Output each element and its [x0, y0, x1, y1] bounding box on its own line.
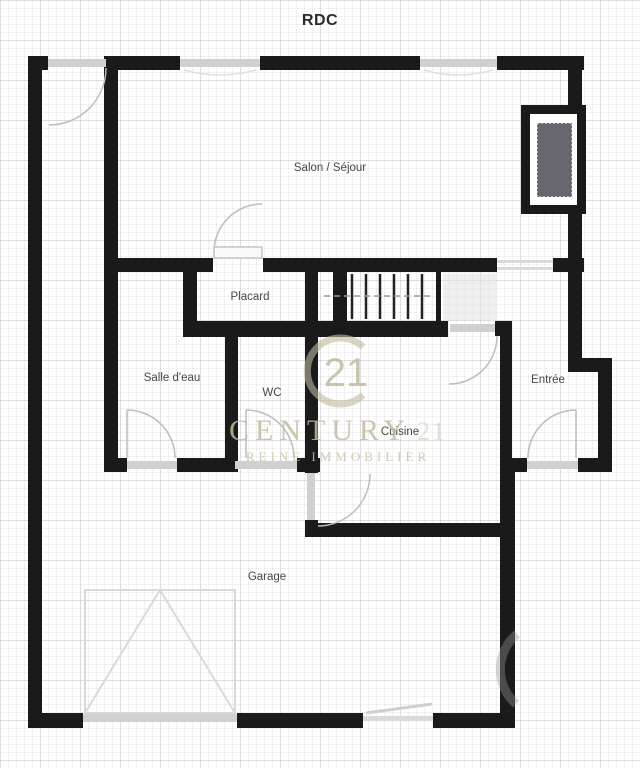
- watermark-tagline: REINE IMMOBILIER: [246, 449, 430, 465]
- watermark-logo: 21: [307, 338, 517, 704]
- placard-door-swing: [214, 204, 262, 252]
- garage-door: [85, 590, 432, 713]
- floor-plan-page: 21 RDC Salon / Séjour Placard Salle d'ea…: [0, 0, 640, 768]
- kitchen-door-opening: [450, 324, 495, 332]
- salle-deau-door-opening: [127, 461, 177, 469]
- side-door-opening: [48, 59, 106, 67]
- garage-rear-door-leaf: [366, 704, 432, 713]
- salon-window-right: [420, 59, 497, 67]
- kitchen-side-door-swing: [318, 474, 370, 526]
- salon-window-left: [180, 59, 260, 67]
- page-title: RDC: [302, 12, 338, 30]
- front-door-swing: [528, 410, 576, 458]
- salon-entree-passage-sill: [497, 267, 553, 270]
- salle-deau-door-swing: [127, 410, 175, 458]
- salon-entree-passage-sill: [497, 260, 553, 263]
- window-sill-arc: [184, 70, 256, 75]
- garage-door-opening: [83, 714, 237, 722]
- kitchen-door-swing: [449, 336, 497, 384]
- room-label-salle-deau: Salle d'eau: [144, 372, 201, 384]
- watermark-brand-number: 21: [417, 417, 447, 447]
- front-door-opening: [527, 461, 578, 469]
- chimney: [521, 105, 586, 214]
- watermark-brand-word: CENTURY: [229, 414, 411, 448]
- stair-end: [436, 272, 441, 321]
- stair-landing-shading: [443, 274, 497, 320]
- room-label-placard: Placard: [231, 291, 270, 303]
- window-sill-arc: [424, 70, 493, 75]
- room-label-wc: WC: [262, 387, 281, 399]
- watermark-brand: CENTURY 21: [229, 414, 447, 448]
- kitchen-side-door-opening: [307, 473, 315, 520]
- side-door-swing: [49, 68, 106, 125]
- room-label-salon: Salon / Séjour: [294, 162, 366, 174]
- century21-ring-number: 21: [324, 351, 369, 395]
- garage-door-swing: [85, 590, 235, 713]
- room-label-garage: Garage: [248, 571, 286, 583]
- placard-door-leaf: [214, 247, 262, 258]
- garage-rear-opening: [363, 716, 433, 721]
- room-label-entree: Entrée: [531, 374, 565, 386]
